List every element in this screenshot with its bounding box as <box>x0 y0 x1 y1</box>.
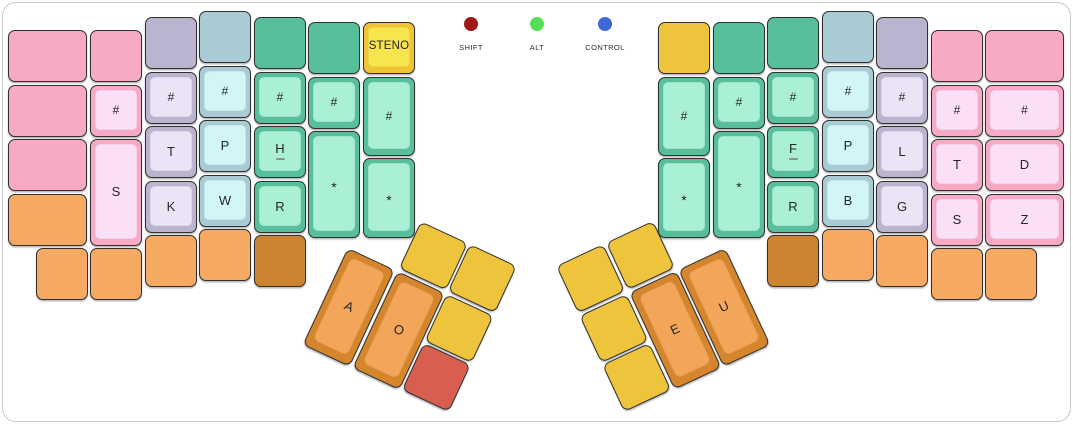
key-hash[interactable]: # <box>254 72 306 124</box>
key-label: # <box>222 85 229 97</box>
key-label: # <box>845 85 852 97</box>
key-label: # <box>1021 104 1028 116</box>
keytop: # <box>204 71 246 111</box>
keytop: # <box>881 77 923 117</box>
key-blank[interactable] <box>8 30 87 82</box>
key-blank[interactable] <box>767 235 819 287</box>
key-t[interactable]: T <box>931 139 983 191</box>
key-hash[interactable]: # <box>822 66 874 118</box>
key-blank[interactable] <box>254 17 306 69</box>
key-hash[interactable]: # <box>308 77 360 129</box>
key-h[interactable]: H <box>254 126 306 178</box>
keytop: # <box>313 82 355 122</box>
key-r[interactable]: R <box>767 181 819 233</box>
key-blank[interactable] <box>8 139 87 191</box>
key-blank[interactable] <box>145 235 197 287</box>
key-d[interactable]: D <box>985 139 1064 191</box>
keytop: R <box>259 186 301 226</box>
keytop: T <box>150 131 192 171</box>
key-blank[interactable] <box>199 229 251 281</box>
key-label: # <box>954 104 961 116</box>
key-blank[interactable] <box>822 11 874 63</box>
key-hash[interactable]: # <box>876 72 928 124</box>
key-blank[interactable] <box>931 248 983 300</box>
keytop: # <box>259 77 301 117</box>
keytop: * <box>313 136 355 231</box>
keytop: # <box>772 77 814 117</box>
keytop: L <box>881 131 923 171</box>
key-w[interactable]: W <box>199 175 251 227</box>
key-t[interactable]: T <box>145 126 197 178</box>
key-label: S <box>953 213 962 226</box>
key-label: O <box>392 322 407 338</box>
keytop: R <box>772 186 814 226</box>
key-label: R <box>788 200 797 213</box>
homing-bump-icon <box>276 158 285 160</box>
key-steno[interactable]: STENO <box>363 22 415 74</box>
key-label: # <box>736 96 743 108</box>
key-label: # <box>113 104 120 116</box>
key-hash[interactable]: # <box>658 77 710 156</box>
key-label: U <box>717 299 731 315</box>
key-label: S <box>112 185 121 198</box>
key-blank[interactable] <box>658 22 710 74</box>
key-blank[interactable] <box>931 30 983 82</box>
keytop: # <box>827 71 869 111</box>
key-label: # <box>331 96 338 108</box>
key-f[interactable]: F <box>767 126 819 178</box>
keytop: # <box>150 77 192 117</box>
keytop: # <box>936 90 978 130</box>
key-blank[interactable] <box>876 235 928 287</box>
key-label: P <box>844 139 853 152</box>
key-label: D <box>1020 158 1029 171</box>
keytop: Z <box>990 199 1059 239</box>
key-blank[interactable] <box>199 11 251 63</box>
keytop: W <box>204 180 246 220</box>
key-blank[interactable] <box>90 30 142 82</box>
key-label: # <box>386 110 393 122</box>
keytop: * <box>718 136 760 231</box>
key-blank[interactable] <box>8 194 87 246</box>
keytop: F <box>772 131 814 171</box>
keytop: S <box>95 144 137 239</box>
key-label: # <box>790 91 797 103</box>
key-label: F <box>789 142 797 155</box>
key-hash[interactable]: # <box>931 85 983 137</box>
key-blank[interactable] <box>822 229 874 281</box>
key-s[interactable]: S <box>931 194 983 246</box>
homing-bump-icon <box>789 158 798 160</box>
keyboard-layout-canvas: #S#TK#PW#HR#*STENO#*#*#*#FR#PB#LG#TS#DZ … <box>0 0 1073 424</box>
key-label: B <box>844 194 853 207</box>
key-label: L <box>898 145 905 158</box>
keytop: # <box>718 82 760 122</box>
key-blank[interactable] <box>36 248 88 300</box>
key-p[interactable]: P <box>822 120 874 172</box>
keytop: S <box>936 199 978 239</box>
key-b[interactable]: B <box>822 175 874 227</box>
key-label: P <box>221 139 230 152</box>
shift-indicator-dot <box>464 17 478 31</box>
key-blank[interactable] <box>308 22 360 74</box>
key-label: W <box>219 194 231 207</box>
keytop: D <box>990 144 1059 184</box>
key-star[interactable]: * <box>713 131 765 238</box>
key-blank[interactable] <box>876 17 928 69</box>
key-label: K <box>167 200 176 213</box>
key-label: E <box>668 322 681 337</box>
key-label: # <box>899 91 906 103</box>
key-blank[interactable] <box>90 248 142 300</box>
key-hash[interactable]: # <box>985 85 1064 137</box>
keytop: STENO <box>368 27 410 67</box>
alt-indicator-dot <box>530 17 544 31</box>
key-label: STENO <box>369 41 410 53</box>
key-blank[interactable] <box>145 17 197 69</box>
key-hash[interactable]: # <box>363 77 415 156</box>
key-blank[interactable] <box>985 248 1037 300</box>
keytop: P <box>827 125 869 165</box>
key-label: # <box>168 91 175 103</box>
keytop: H <box>259 131 301 171</box>
key-l[interactable]: L <box>876 126 928 178</box>
keytop: K <box>150 186 192 226</box>
keytop: P <box>204 125 246 165</box>
control-indicator-dot <box>598 17 612 31</box>
key-blank[interactable] <box>713 22 765 74</box>
key-label: * <box>736 180 741 194</box>
key-label: A <box>342 299 355 314</box>
key-label: T <box>953 158 961 171</box>
key-k[interactable]: K <box>145 181 197 233</box>
key-label: Z <box>1021 213 1029 226</box>
key-label: # <box>681 110 688 122</box>
key-label: R <box>275 200 284 213</box>
key-blank[interactable] <box>985 30 1064 82</box>
keytop: # <box>368 82 410 149</box>
key-star[interactable]: * <box>308 131 360 238</box>
key-label: # <box>277 91 284 103</box>
key-blank[interactable] <box>767 17 819 69</box>
key-z[interactable]: Z <box>985 194 1064 246</box>
keytop: # <box>663 82 705 149</box>
key-g[interactable]: G <box>876 181 928 233</box>
key-hash[interactable]: # <box>713 77 765 129</box>
keytop: G <box>881 186 923 226</box>
key-r[interactable]: R <box>254 181 306 233</box>
key-label: * <box>331 180 336 194</box>
key-p[interactable]: P <box>199 120 251 172</box>
key-s[interactable]: S <box>90 139 142 246</box>
key-label: T <box>167 145 175 158</box>
key-blank[interactable] <box>254 235 306 287</box>
key-label: H <box>275 142 284 155</box>
keytop: # <box>95 90 137 130</box>
key-hash[interactable]: # <box>145 72 197 124</box>
key-hash[interactable]: # <box>199 66 251 118</box>
control-indicator-label: CONTROL <box>560 44 650 52</box>
key-hash[interactable]: # <box>90 85 142 137</box>
key-blank[interactable] <box>8 85 87 137</box>
keytop: # <box>990 90 1059 130</box>
key-hash[interactable]: # <box>767 72 819 124</box>
keytop: B <box>827 180 869 220</box>
key-label: G <box>897 200 907 213</box>
keytop: T <box>936 144 978 184</box>
